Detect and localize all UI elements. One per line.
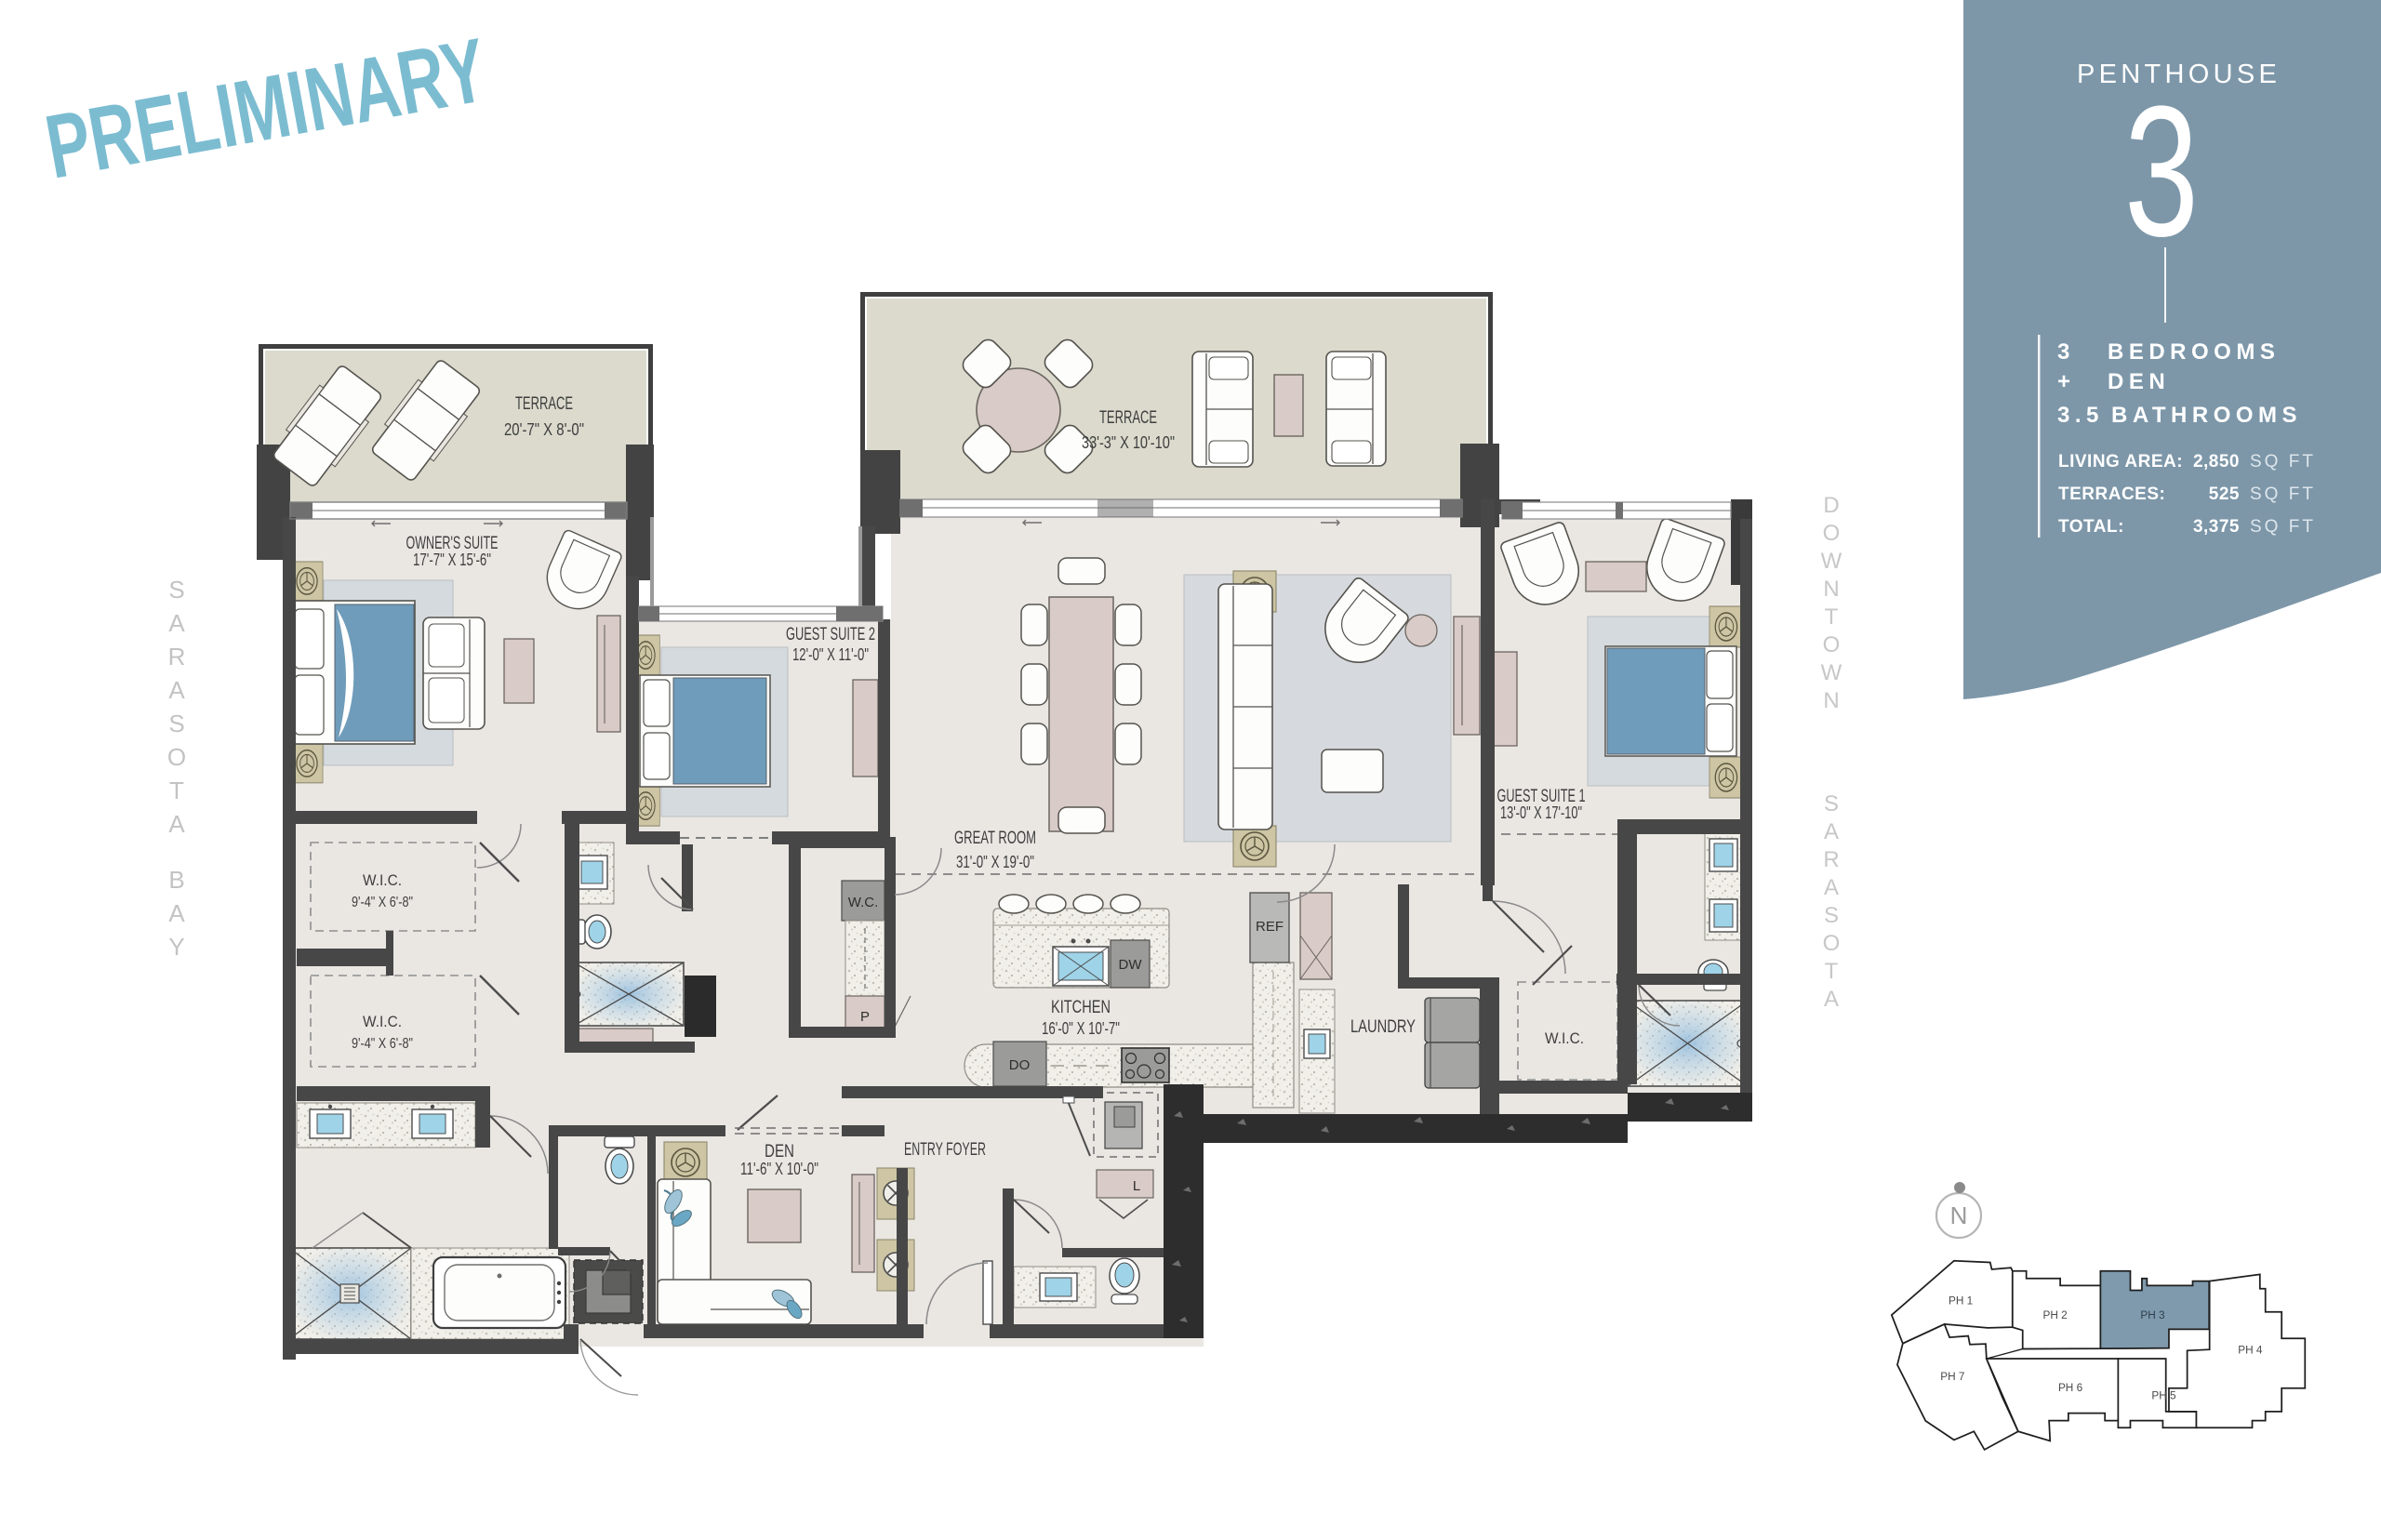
svg-text:LAUNDRY: LAUNDRY xyxy=(1350,1017,1416,1037)
svg-text:12'-0" X 11'-0": 12'-0" X 11'-0" xyxy=(792,645,869,664)
svg-text:S: S xyxy=(1824,903,1839,928)
svg-text:PH 5: PH 5 xyxy=(2151,1390,2176,1402)
svg-text:REF: REF xyxy=(1256,919,1284,935)
svg-text:33'-3" X 10'-10": 33'-3" X 10'-10" xyxy=(1082,433,1175,452)
svg-text:+: + xyxy=(2057,369,2076,394)
svg-text:16'-0" X 10'-7": 16'-0" X 10'-7" xyxy=(1042,1019,1120,1038)
svg-text:T: T xyxy=(1825,604,1839,630)
svg-text:SQ FT: SQ FT xyxy=(2250,485,2316,504)
svg-text:GUEST SUITE 2: GUEST SUITE 2 xyxy=(786,625,875,644)
svg-text:PH 6: PH 6 xyxy=(2058,1382,2083,1394)
svg-text:3: 3 xyxy=(2124,68,2199,275)
svg-text:TOTAL:: TOTAL: xyxy=(2058,517,2124,537)
svg-text:L: L xyxy=(1133,1178,1140,1194)
svg-text:A: A xyxy=(168,609,185,637)
svg-text:GREAT ROOM: GREAT ROOM xyxy=(954,829,1036,848)
svg-text:D: D xyxy=(1823,493,1839,518)
svg-text:W: W xyxy=(1821,660,1842,685)
svg-text:Y: Y xyxy=(168,933,184,961)
svg-text:O: O xyxy=(1823,521,1841,546)
svg-text:PH 4: PH 4 xyxy=(2238,1344,2263,1356)
svg-text:A: A xyxy=(168,810,185,838)
svg-text:DW: DW xyxy=(1119,957,1143,973)
svg-text:KITCHEN: KITCHEN xyxy=(1051,998,1111,1017)
svg-text:BEDROOMS: BEDROOMS xyxy=(2108,339,2280,365)
svg-text:R: R xyxy=(1823,847,1839,872)
svg-text:PH 1: PH 1 xyxy=(1949,1295,1973,1308)
svg-text:DO: DO xyxy=(1009,1057,1031,1073)
svg-text:20'-7" X 8'-0": 20'-7" X 8'-0" xyxy=(504,420,584,439)
svg-text:A: A xyxy=(1824,875,1839,900)
svg-text:T: T xyxy=(1825,959,1839,984)
svg-text:W: W xyxy=(1821,549,1842,574)
svg-text:W.I.C.: W.I.C. xyxy=(1545,1029,1584,1047)
svg-text:TERRACE: TERRACE xyxy=(1099,408,1157,428)
svg-text:O: O xyxy=(1823,632,1841,657)
svg-text:31'-0" X 19'-0": 31'-0" X 19'-0" xyxy=(956,853,1034,871)
svg-text:9'-4" X 6'-8": 9'-4" X 6'-8" xyxy=(352,1036,413,1052)
svg-text:O: O xyxy=(167,743,186,771)
svg-text:2,850: 2,850 xyxy=(2193,452,2240,471)
svg-text:BATHROOMS: BATHROOMS xyxy=(2111,403,2302,428)
svg-text:3: 3 xyxy=(2057,339,2075,365)
svg-text:PH 3: PH 3 xyxy=(2140,1309,2165,1321)
svg-text:N: N xyxy=(1950,1201,1968,1229)
svg-text:11'-6" X 10'-0": 11'-6" X 10'-0" xyxy=(740,1160,818,1178)
svg-text:PH 2: PH 2 xyxy=(2043,1309,2068,1321)
svg-text:9'-4" X 6'-8": 9'-4" X 6'-8" xyxy=(352,895,413,910)
svg-text:N: N xyxy=(1823,688,1839,713)
svg-text:ENTRY FOYER: ENTRY FOYER xyxy=(904,1140,986,1160)
svg-text:LIVING AREA:: LIVING AREA: xyxy=(2058,452,2183,471)
svg-text:A: A xyxy=(168,899,185,927)
svg-text:PH 7: PH 7 xyxy=(1940,1371,1964,1383)
svg-text:17'-7" X 15'-6": 17'-7" X 15'-6" xyxy=(413,551,491,569)
svg-text:T: T xyxy=(169,777,184,804)
svg-text:W.C.: W.C. xyxy=(848,895,879,910)
svg-text:SQ FT: SQ FT xyxy=(2250,517,2316,537)
svg-text:S: S xyxy=(1824,791,1839,816)
svg-text:13'-0" X 17'-10": 13'-0" X 17'-10" xyxy=(1500,803,1582,822)
svg-text:A: A xyxy=(1824,987,1839,1012)
svg-text:W.I.C.: W.I.C. xyxy=(363,1013,402,1030)
svg-text:B: B xyxy=(168,866,184,894)
svg-text:O: O xyxy=(1823,931,1841,956)
svg-text:TERRACE: TERRACE xyxy=(515,394,573,414)
svg-text:N: N xyxy=(1823,577,1839,602)
svg-text:A: A xyxy=(1824,819,1839,844)
svg-text:S: S xyxy=(168,576,184,604)
svg-text:SQ FT: SQ FT xyxy=(2250,452,2316,471)
svg-text:R: R xyxy=(168,643,186,670)
svg-text:DEN: DEN xyxy=(2108,369,2170,394)
svg-text:A: A xyxy=(168,676,185,704)
svg-text:TERRACES:: TERRACES: xyxy=(2058,485,2165,504)
svg-text:525: 525 xyxy=(2209,485,2240,504)
svg-text:3,375: 3,375 xyxy=(2193,517,2240,537)
svg-text:3.5: 3.5 xyxy=(2057,403,2104,428)
svg-text:P: P xyxy=(860,1009,870,1025)
svg-text:DEN: DEN xyxy=(765,1142,794,1162)
svg-text:W.I.C.: W.I.C. xyxy=(363,871,402,889)
svg-text:S: S xyxy=(168,710,184,737)
